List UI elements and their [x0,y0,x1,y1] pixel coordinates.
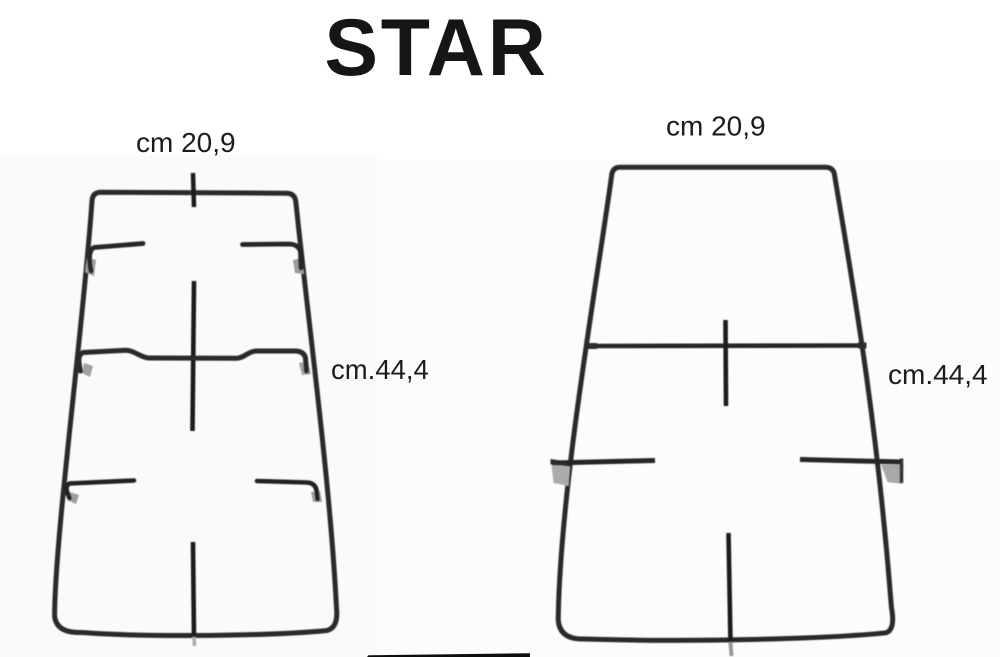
svg-text:cm 20,9: cm 20,9 [666,111,766,142]
svg-text:cm.44,4: cm.44,4 [331,354,429,385]
svg-text:STAR: STAR [324,3,548,93]
svg-text:cm 20,9: cm 20,9 [136,127,236,158]
svg-text:cm.44,4: cm.44,4 [888,359,988,390]
